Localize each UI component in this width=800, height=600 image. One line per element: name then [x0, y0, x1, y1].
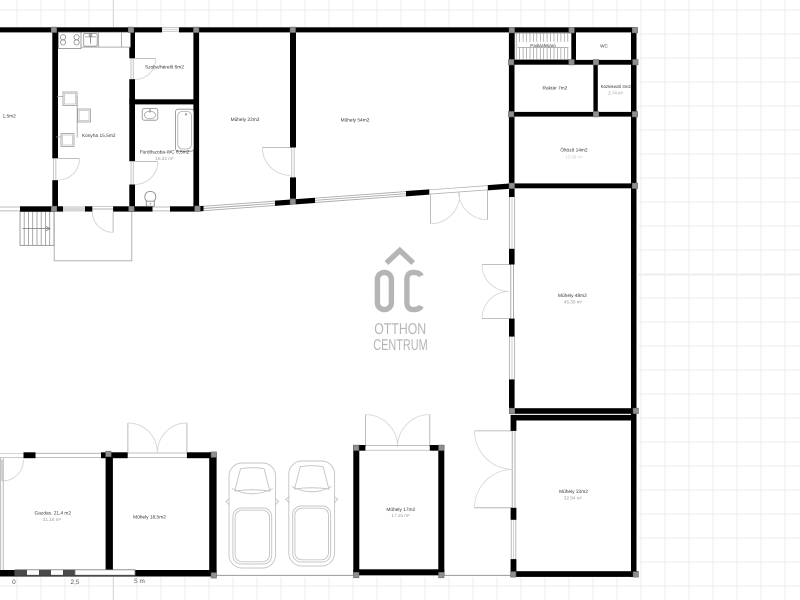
svg-text:45.30 m²: 45.30 m²: [564, 299, 583, 304]
svg-text:Fürdőszoba-WC 6,5m2: Fürdőszoba-WC 6,5m2: [140, 150, 190, 156]
svg-text:21.16 m²: 21.16 m²: [43, 517, 62, 522]
svg-text:0: 0: [12, 579, 16, 586]
svg-text:CENTRUM: CENTRUM: [373, 337, 428, 354]
svg-text:16.32 m²: 16.32 m²: [155, 156, 174, 161]
svg-text:2.74 m²: 2.74 m²: [608, 90, 623, 95]
svg-text:1,5m2: 1,5m2: [2, 114, 16, 120]
svg-text:Gazdas. 21,4 m2: Gazdas. 21,4 m2: [35, 511, 72, 517]
svg-text:Közlekedő 3m2: Közlekedő 3m2: [601, 84, 632, 89]
svg-text:Műhely 17m2: Műhely 17m2: [386, 507, 415, 513]
svg-text:13.98 m²: 13.98 m²: [565, 154, 583, 159]
svg-text:Műhely 23m2: Műhely 23m2: [231, 117, 260, 123]
svg-text:17.15 m²: 17.15 m²: [391, 513, 410, 518]
svg-text:2,5: 2,5: [71, 579, 80, 586]
svg-text:Műhely 18,5m2: Műhely 18,5m2: [133, 515, 166, 521]
svg-text:Szoba/hérelő 6m2: Szoba/hérelő 6m2: [145, 65, 184, 71]
svg-text:OTTHON: OTTHON: [374, 321, 426, 338]
svg-text:5 m: 5 m: [134, 578, 145, 585]
svg-text:Műhely 48m2: Műhely 48m2: [558, 293, 587, 299]
svg-text:Műhely 33m2: Műhely 33m2: [559, 489, 588, 495]
svg-text:Raktár 7m2: Raktár 7m2: [543, 85, 568, 91]
svg-text:32.94 m²: 32.94 m²: [564, 495, 583, 500]
svg-text:Padlásfeljáró: Padlásfeljáró: [530, 43, 556, 48]
svg-text:WC: WC: [600, 44, 608, 49]
svg-text:Konyha 15,5m2: Konyha 15,5m2: [82, 133, 116, 139]
svg-text:Öltöző 14m2: Öltöző 14m2: [560, 146, 588, 153]
svg-text:Műhely 54m2: Műhely 54m2: [341, 117, 370, 123]
